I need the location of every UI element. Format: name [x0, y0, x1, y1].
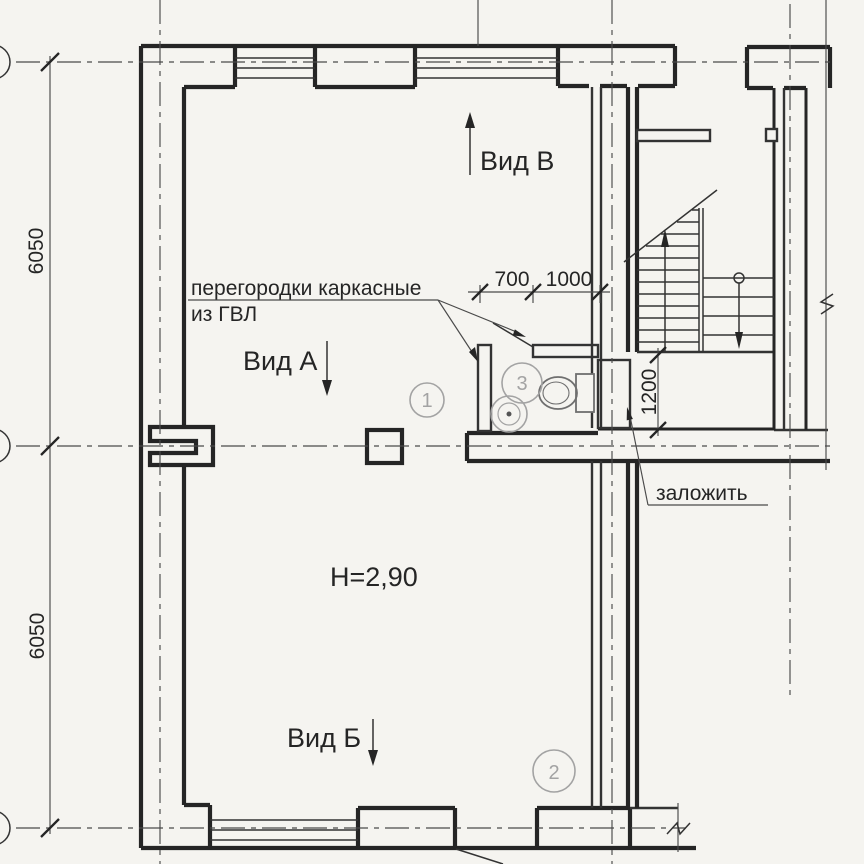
- toilet-tank: [576, 374, 594, 412]
- dim-1000: 1000: [546, 268, 593, 291]
- dim-6050-lower: 6050: [26, 613, 49, 660]
- room-number-2: 2: [548, 762, 559, 784]
- room-number-1: 1: [421, 390, 432, 412]
- dim-700: 700: [494, 268, 529, 291]
- partitions-note-line2: из ГВЛ: [191, 303, 257, 326]
- sink-drain: [507, 412, 512, 417]
- view-v-label: Вид В: [480, 146, 554, 176]
- partitions-note-line1: перегородки каркасные: [191, 277, 421, 300]
- view-b-label: Вид Б: [287, 723, 361, 753]
- view-a-label: Вид А: [243, 346, 317, 376]
- stair-landing-wall: [637, 130, 710, 141]
- floor-plan-page: 6050 6050 700 1000 1200 перегородки карк…: [0, 0, 864, 864]
- door-jamb-block: [766, 129, 777, 141]
- room-number-3: 3: [516, 373, 527, 395]
- floor-plan-drawing: 6050 6050 700 1000 1200 перегородки карк…: [0, 0, 864, 864]
- paper-background: [0, 0, 864, 864]
- height-note: Н=2,90: [330, 562, 418, 592]
- block-up-note: заложить: [656, 482, 748, 505]
- dim-1200: 1200: [638, 369, 661, 416]
- dim-6050-upper: 6050: [25, 228, 48, 275]
